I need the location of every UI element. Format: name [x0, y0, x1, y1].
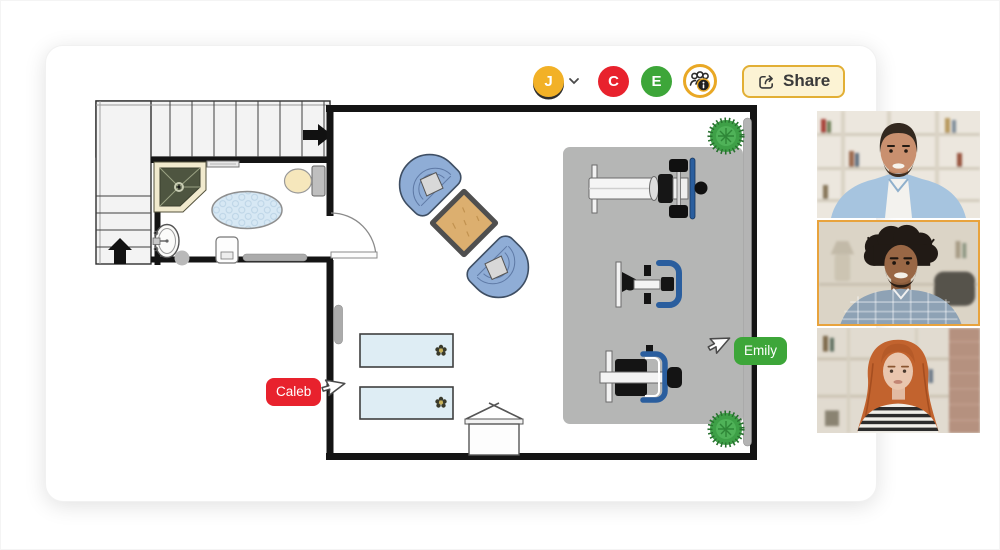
- bathroom-radiator[interactable]: [243, 254, 307, 261]
- potted-plant-top[interactable]: [710, 120, 742, 152]
- video-participant-3[interactable]: [817, 328, 980, 433]
- share-button-label: Share: [783, 71, 830, 91]
- waste-bin[interactable]: [216, 237, 238, 263]
- door-swing[interactable]: [331, 213, 377, 258]
- collaborator-cursor-caleb: Caleb: [266, 375, 346, 406]
- cursor-name-tag: Caleb: [266, 378, 321, 406]
- cursor-name-tag: Emily: [734, 337, 787, 365]
- chevron-down-icon[interactable]: [567, 74, 581, 88]
- towel-rail[interactable]: [207, 161, 239, 167]
- massage-table-1[interactable]: [360, 334, 453, 367]
- massage-table-2[interactable]: [360, 387, 453, 419]
- collaborator-initial: C: [608, 73, 619, 90]
- collaborators-info-icon[interactable]: [683, 64, 717, 98]
- cursor-arrow-icon: [706, 332, 733, 359]
- collaborator-cursor-emily: Emily: [706, 332, 787, 365]
- share-button[interactable]: Share: [742, 65, 845, 98]
- collaborator-initial: E: [651, 73, 661, 90]
- collaborator-avatar-e[interactable]: E: [641, 66, 672, 97]
- share-icon: [757, 72, 776, 91]
- oval-rug[interactable]: [212, 192, 282, 229]
- collaboration-bar: J C E Share: [533, 64, 845, 98]
- video-participant-2-active[interactable]: [817, 220, 980, 326]
- cursor-arrow-icon: [318, 373, 348, 403]
- current-user-avatar[interactable]: J: [533, 66, 564, 97]
- toilet[interactable]: [285, 166, 326, 196]
- video-participant-1[interactable]: [817, 111, 980, 218]
- corner-shower[interactable]: [154, 162, 206, 212]
- laundry-basket[interactable]: [465, 403, 523, 455]
- wall-rail[interactable]: [744, 118, 752, 446]
- wall-radiator[interactable]: [335, 305, 343, 344]
- collaborator-avatar-c[interactable]: C: [598, 66, 629, 97]
- potted-plant-bottom[interactable]: [710, 413, 742, 445]
- app-screen: { "collaboration": { "current_user": { "…: [0, 0, 1000, 550]
- current-user-initial: J: [544, 73, 552, 90]
